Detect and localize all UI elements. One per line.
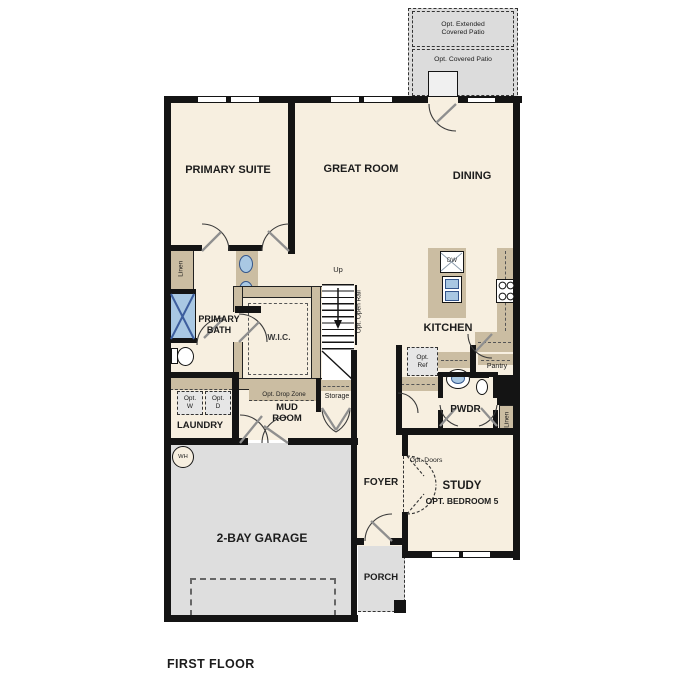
opt-covered-patio-label: Opt. Covered Patio [434,56,492,64]
dishwasher-label: DW [440,258,464,265]
room-label-storage: Storage [318,393,356,401]
window [462,551,491,558]
counter-below-ref [398,377,438,391]
wall [493,410,498,430]
room-label-mud-room: MUD ROOM [262,402,312,425]
plan-title: FIRST FLOOR [167,657,287,672]
vanity-sink-icon [239,255,253,273]
wall [164,615,358,622]
opt-refrigerator: Opt. Ref [407,347,438,376]
garage-door-outline [190,578,336,616]
study-floor [405,430,517,558]
floor-plan: Opt. Extended Covered Patio Opt. Covered… [0,0,687,687]
room-label-laundry: LAUNDRY [165,420,235,431]
room-label-study: STUDY [405,480,519,494]
wall [164,438,248,445]
wall [168,372,232,378]
room-label-primary-suite: PRIMARY SUITE [178,164,278,177]
wall [288,96,295,254]
wall [164,96,171,622]
linen-right-label: Linen [503,400,510,440]
water-heater: WH [172,446,194,468]
opt-dryer: Opt. D [205,391,231,415]
opt-open-rail-label: Opt. Open Rail [355,277,362,347]
window [363,96,393,103]
pwdr-toilet-bowl-icon [476,379,488,395]
room-label-study-opt: OPT. BEDROOM 5 [405,496,519,506]
wall [438,372,498,377]
room-label-wic: W.I.C. [249,332,309,342]
room-label-dining: DINING [422,170,522,183]
room-label-foyer: FOYER [355,477,407,489]
room-label-great-room: GREAT ROOM [311,163,411,176]
wall [470,345,476,378]
wall [438,372,443,398]
storage-shelf [320,380,352,391]
drop-zone-label: Opt. Drop Zone [249,391,319,398]
sink-basin-icon [445,291,459,301]
opt-washer-label: Opt. W [181,395,199,411]
under-stair-area [322,352,352,380]
opt-dryer-label: Opt. D [209,395,227,411]
window [467,97,496,103]
toilet-bowl-icon [177,347,194,366]
linen-left-label: Linen [177,242,184,296]
room-label-garage: 2-BAY GARAGE [212,531,312,545]
foyer-floor [355,440,405,546]
cooktop [496,279,514,303]
porch-column [394,600,406,613]
water-heater-label: WH [178,454,188,460]
wall [235,306,261,313]
opt-doors-label: Opt. Doors [408,457,444,465]
wall [402,551,520,558]
laundry-counter [170,377,232,390]
wall [228,245,262,251]
staircase [322,284,354,352]
window [431,551,460,558]
room-label-primary-bath: PRIMARY BATH [190,314,248,336]
window [330,96,360,103]
wall [168,245,202,251]
window [230,96,260,103]
opt-refrigerator-label: Opt. Ref [412,354,434,370]
patio-door-landing [428,71,458,99]
wall [288,438,358,445]
wall [168,338,197,343]
wall [351,538,364,545]
opt-extended-covered-patio-label: Opt. Extended Covered Patio [428,21,498,37]
room-label-kitchen: KITCHEN [398,322,498,335]
opt-washer: Opt. W [177,391,203,415]
opt-extended-covered-patio: Opt. Extended Covered Patio [412,11,514,47]
counter-beside-ref [438,352,470,368]
patio-door-opening [428,96,458,103]
wall [396,345,402,435]
stairs-up-label: Up [318,266,358,275]
pantry-label: Pantry [478,363,516,371]
room-label-pwdr: PWDR [438,404,493,416]
wic-wall [311,286,321,388]
room-label-porch: PORCH [357,572,405,583]
wall [402,428,408,456]
sink-basin-icon [445,279,459,289]
window [197,96,227,103]
